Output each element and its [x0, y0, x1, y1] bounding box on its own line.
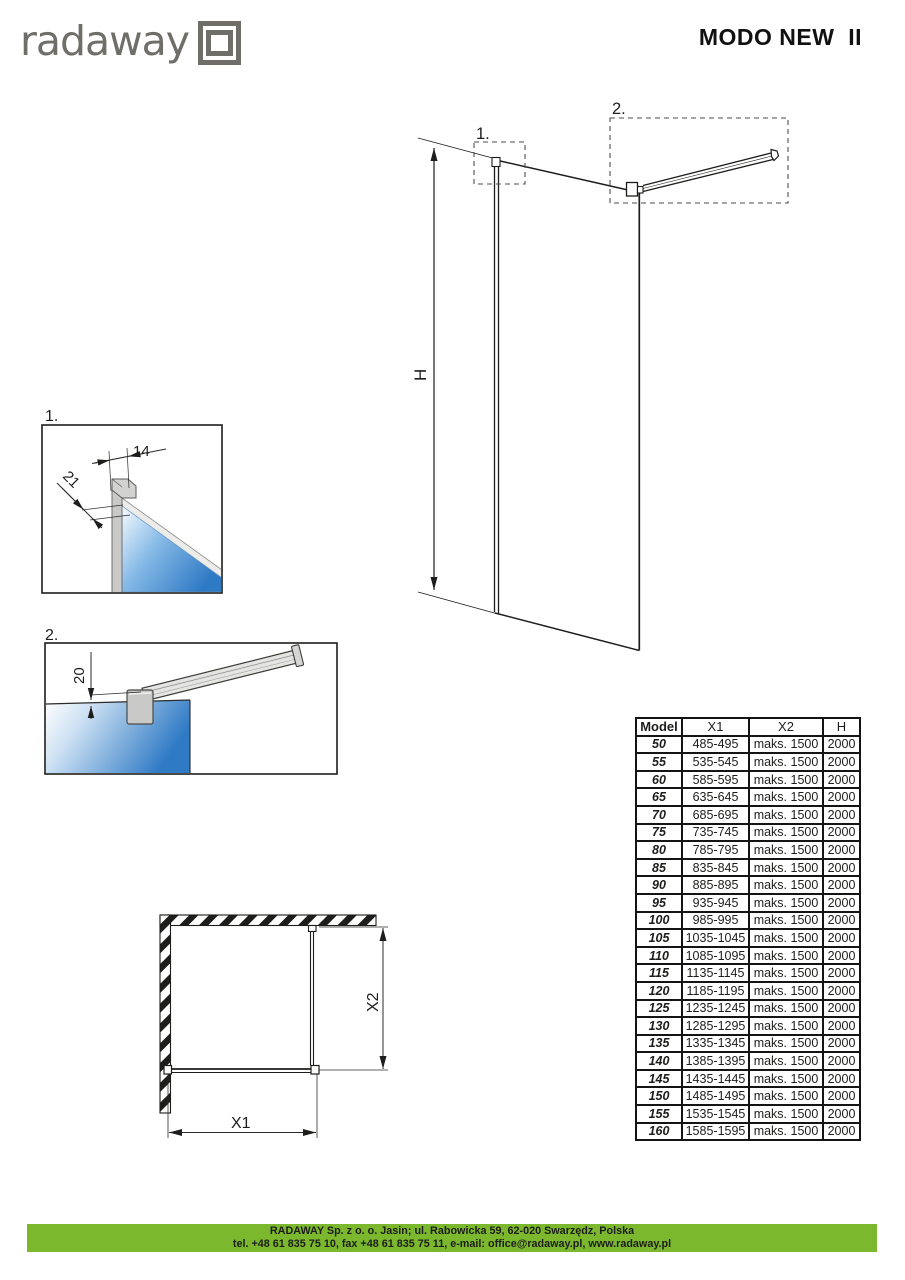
cell-x2: maks. 1500 [749, 1070, 823, 1088]
cell-model: 105 [636, 929, 682, 947]
logo-square-icon [198, 21, 241, 65]
cell-model: 70 [636, 806, 682, 824]
glass-pane [122, 506, 222, 592]
table-row: 60 585-595 maks. 1500 2000 [636, 771, 860, 789]
footer-bar: RADAWAY Sp. z o. o. Jasin; ul. Rabowicka… [27, 1224, 877, 1252]
cell-x1: 1385-1395 [682, 1052, 749, 1070]
cell-x2: maks. 1500 [749, 929, 823, 947]
cell-x2: maks. 1500 [749, 1052, 823, 1070]
cell-h: 2000 [823, 771, 860, 789]
cell-model: 95 [636, 894, 682, 912]
cell-h: 2000 [823, 806, 860, 824]
detail-1-label: 1. [45, 408, 58, 425]
cell-h: 2000 [823, 788, 860, 806]
table-row: 115 1135-1145 maks. 1500 2000 [636, 964, 860, 982]
cell-x1: 1535-1545 [682, 1105, 749, 1123]
cell-x1: 585-595 [682, 771, 749, 789]
col-header-model: Model [636, 718, 682, 736]
cell-x1: 635-645 [682, 788, 749, 806]
table-row: 65 635-645 maks. 1500 2000 [636, 788, 860, 806]
cell-model: 120 [636, 982, 682, 1000]
table-row: 100 985-995 maks. 1500 2000 [636, 912, 860, 930]
dim-14-label: 14 [133, 443, 150, 460]
cell-x1: 1585-1595 [682, 1123, 749, 1141]
cell-h: 2000 [823, 1017, 860, 1035]
cell-model: 145 [636, 1070, 682, 1088]
cell-model: 160 [636, 1123, 682, 1141]
cell-x2: maks. 1500 [749, 841, 823, 859]
table-row: 155 1535-1545 maks. 1500 2000 [636, 1105, 860, 1123]
wall-top [160, 915, 376, 926]
cell-x2: maks. 1500 [749, 824, 823, 842]
cell-model: 155 [636, 1105, 682, 1123]
cell-h: 2000 [823, 982, 860, 1000]
cell-model: 50 [636, 736, 682, 754]
dim-20-label: 20 [71, 667, 88, 684]
cell-model: 125 [636, 1000, 682, 1018]
table-row: 135 1335-1345 maks. 1500 2000 [636, 1035, 860, 1053]
table-row: 85 835-845 maks. 1500 2000 [636, 859, 860, 877]
cell-x2: maks. 1500 [749, 894, 823, 912]
cell-x1: 885-895 [682, 876, 749, 894]
col-header-x1: X1 [682, 718, 749, 736]
cell-model: 150 [636, 1087, 682, 1105]
cell-h: 2000 [823, 912, 860, 930]
cell-x2: maks. 1500 [749, 771, 823, 789]
cell-h: 2000 [823, 894, 860, 912]
table-row: 125 1235-1245 maks. 1500 2000 [636, 1000, 860, 1018]
cell-x1: 1285-1295 [682, 1017, 749, 1035]
cell-x2: maks. 1500 [749, 788, 823, 806]
cell-x1: 735-745 [682, 824, 749, 842]
cell-x1: 485-495 [682, 736, 749, 754]
dim-14 [92, 448, 166, 491]
cell-h: 2000 [823, 929, 860, 947]
cell-x1: 1485-1495 [682, 1087, 749, 1105]
table-row: 120 1185-1195 maks. 1500 2000 [636, 982, 860, 1000]
col-header-x2: X2 [749, 718, 823, 736]
table-row: 150 1485-1495 maks. 1500 2000 [636, 1087, 860, 1105]
dim-x2-label: X2 [365, 992, 382, 1012]
detail-2-drawing: 2. 20 [38, 622, 348, 780]
cell-model: 135 [636, 1035, 682, 1053]
top-bracket [492, 158, 500, 167]
cell-x1: 685-695 [682, 806, 749, 824]
cell-h: 2000 [823, 841, 860, 859]
cell-model: 130 [636, 1017, 682, 1035]
cell-x2: maks. 1500 [749, 876, 823, 894]
cell-x1: 935-945 [682, 894, 749, 912]
cell-x1: 835-845 [682, 859, 749, 877]
table-header-row: Model X1 X2 H [636, 718, 860, 736]
cell-model: 55 [636, 753, 682, 771]
page-title: MODO NEW II [699, 24, 862, 51]
support-bar-detail [141, 645, 304, 705]
cell-model: 75 [636, 824, 682, 842]
table-row: 55 535-545 maks. 1500 2000 [636, 753, 860, 771]
cell-model: 110 [636, 947, 682, 965]
glass-pane-top [46, 700, 190, 774]
cell-h: 2000 [823, 1035, 860, 1053]
cell-x2: maks. 1500 [749, 964, 823, 982]
wall-left [160, 915, 171, 1113]
cell-h: 2000 [823, 964, 860, 982]
cell-h: 2000 [823, 824, 860, 842]
cell-x2: maks. 1500 [749, 1000, 823, 1018]
cell-model: 65 [636, 788, 682, 806]
table-row: 130 1285-1295 maks. 1500 2000 [636, 1017, 860, 1035]
cell-h: 2000 [823, 1105, 860, 1123]
table-row: 80 785-795 maks. 1500 2000 [636, 841, 860, 859]
cell-x1: 1335-1345 [682, 1035, 749, 1053]
footer-address: RADAWAY Sp. z o. o. Jasin; ul. Rabowicka… [27, 1225, 877, 1238]
col-header-h: H [823, 718, 860, 736]
cell-x1: 1435-1445 [682, 1070, 749, 1088]
cell-model: 100 [636, 912, 682, 930]
cell-x2: maks. 1500 [749, 1123, 823, 1141]
wall-anchor [771, 150, 779, 161]
table-row: 160 1585-1595 maks. 1500 2000 [636, 1123, 860, 1141]
cell-model: 80 [636, 841, 682, 859]
cell-h: 2000 [823, 947, 860, 965]
main-glass-panel [418, 118, 788, 651]
cell-h: 2000 [823, 736, 860, 754]
table-row: 75 735-745 maks. 1500 2000 [636, 824, 860, 842]
cell-h: 2000 [823, 1000, 860, 1018]
dim-h-label: H [411, 369, 430, 381]
cell-x1: 785-795 [682, 841, 749, 859]
support-bar-plan [309, 926, 317, 1066]
support-bar [643, 150, 779, 192]
cell-model: 60 [636, 771, 682, 789]
detail-1-drawing: 1. 14 21 [38, 403, 233, 603]
cell-x2: maks. 1500 [749, 736, 823, 754]
plan-view-drawing: X2 X1 [145, 900, 400, 1150]
cell-h: 2000 [823, 859, 860, 877]
logo-wordmark: radaway [20, 21, 189, 61]
cell-x2: maks. 1500 [749, 982, 823, 1000]
table-row: 105 1035-1045 maks. 1500 2000 [636, 929, 860, 947]
table-row: 145 1435-1445 maks. 1500 2000 [636, 1070, 860, 1088]
cell-x2: maks. 1500 [749, 1017, 823, 1035]
cell-model: 140 [636, 1052, 682, 1070]
table-row: 70 685-695 maks. 1500 2000 [636, 806, 860, 824]
cell-h: 2000 [823, 1052, 860, 1070]
cell-h: 2000 [823, 753, 860, 771]
cell-h: 2000 [823, 1123, 860, 1141]
callout-1-label: 1. [476, 125, 490, 143]
cell-x2: maks. 1500 [749, 753, 823, 771]
cell-x2: maks. 1500 [749, 1035, 823, 1053]
cell-x1: 1035-1045 [682, 929, 749, 947]
cell-x2: maks. 1500 [749, 912, 823, 930]
main-drawing: 1. 2. H [380, 100, 800, 680]
cell-x1: 1085-1095 [682, 947, 749, 965]
cell-x2: maks. 1500 [749, 806, 823, 824]
size-table: Model X1 X2 H 50 485-495 maks. 1500 2000… [635, 717, 861, 1141]
cell-model: 90 [636, 876, 682, 894]
table-row: 140 1385-1395 maks. 1500 2000 [636, 1052, 860, 1070]
cell-h: 2000 [823, 876, 860, 894]
radaway-logo: radaway [20, 12, 241, 65]
cell-x1: 985-995 [682, 912, 749, 930]
table-row: 110 1085-1095 maks. 1500 2000 [636, 947, 860, 965]
table-row: 50 485-495 maks. 1500 2000 [636, 736, 860, 754]
cell-x2: maks. 1500 [749, 859, 823, 877]
footer-contact: tel. +48 61 835 75 10, fax +48 61 835 75… [27, 1238, 877, 1251]
table-row: 90 885-895 maks. 1500 2000 [636, 876, 860, 894]
cell-x1: 1135-1145 [682, 964, 749, 982]
cell-model: 85 [636, 859, 682, 877]
cell-h: 2000 [823, 1087, 860, 1105]
dim-x1-label: X1 [231, 1115, 251, 1132]
support-clamp [627, 183, 644, 197]
glass-clamp [127, 690, 153, 724]
cell-h: 2000 [823, 1070, 860, 1088]
cell-x1: 535-545 [682, 753, 749, 771]
cell-x1: 1185-1195 [682, 982, 749, 1000]
callout-2-label: 2. [612, 100, 626, 118]
glass-panel-plan [164, 1066, 319, 1075]
cell-x2: maks. 1500 [749, 947, 823, 965]
cell-x2: maks. 1500 [749, 1105, 823, 1123]
cell-x1: 1235-1245 [682, 1000, 749, 1018]
cell-model: 115 [636, 964, 682, 982]
detail-2-label: 2. [45, 627, 58, 644]
table-row: 95 935-945 maks. 1500 2000 [636, 894, 860, 912]
cell-x2: maks. 1500 [749, 1087, 823, 1105]
logo-square-inner-icon [206, 30, 233, 56]
